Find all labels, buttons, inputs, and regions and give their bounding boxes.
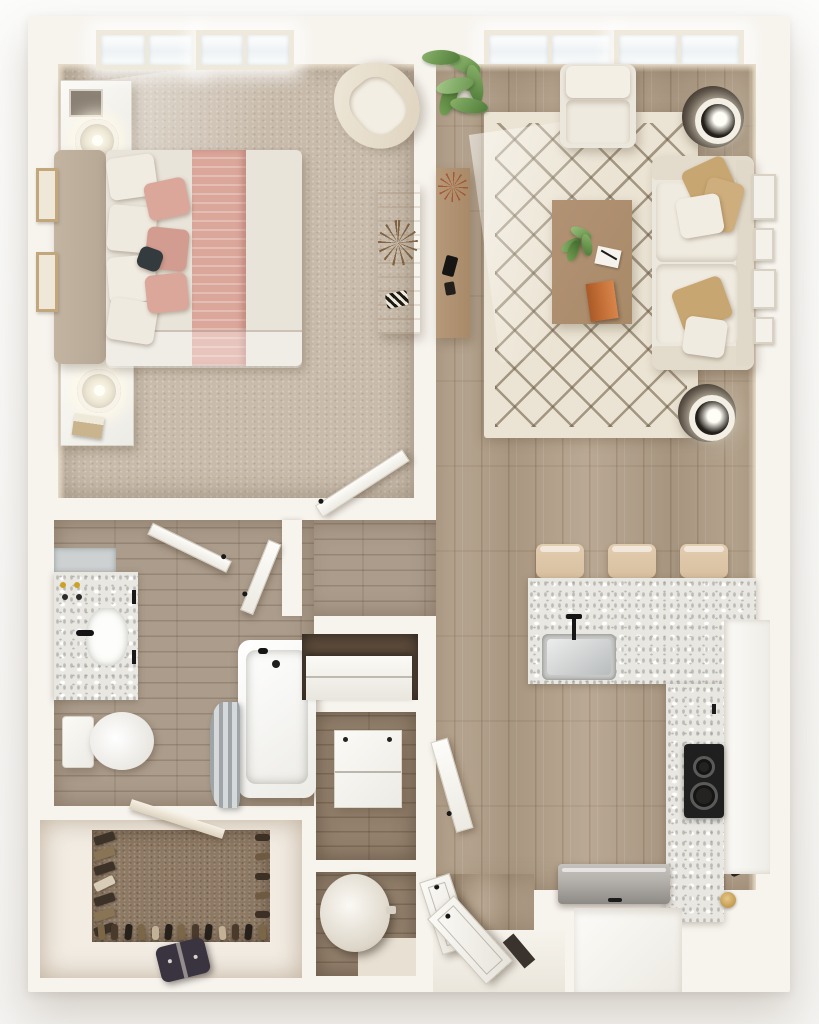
heater-pipe [386, 906, 396, 914]
decor-bowl [720, 892, 736, 908]
shoe-pair [138, 924, 146, 941]
wall-frame [754, 317, 774, 344]
floor-plan-render [0, 0, 819, 1024]
window-pane [552, 35, 611, 65]
shower-curtain [210, 702, 240, 808]
cooktop [684, 744, 724, 818]
striped-decor [385, 290, 410, 309]
tub-drain [272, 660, 280, 668]
tub-faucet [258, 648, 268, 654]
nightstand [60, 356, 134, 446]
shoe-pair [152, 926, 159, 940]
entry-cabinet [574, 908, 682, 992]
clothing-item [93, 861, 116, 876]
cooktop-burner [693, 756, 715, 778]
clothing-item [93, 892, 116, 907]
bag-dot [193, 954, 198, 959]
round-side-table [682, 86, 744, 148]
remote-controls [442, 255, 459, 277]
bedroom-wall-art [36, 252, 58, 312]
kitchen-wall-cabinets [724, 620, 770, 874]
bag-dot [167, 959, 172, 964]
cooktop-burner [690, 782, 718, 810]
vanity-sink [86, 608, 128, 666]
wall-frame [752, 174, 776, 220]
vanity-faucet [76, 630, 94, 636]
book-stack [72, 413, 105, 439]
shoe-pair [204, 924, 213, 941]
shoe-pair [218, 926, 226, 941]
gallery-wall-frames [752, 174, 776, 344]
shelf-edge-line [306, 676, 412, 678]
cabinet-handle [132, 650, 136, 664]
door-handle [220, 553, 227, 560]
plant-leaf [422, 50, 460, 65]
round-side-table [678, 384, 736, 442]
shoe-pair [97, 924, 105, 941]
armchair-seat [566, 100, 630, 144]
armchair [560, 64, 636, 148]
window-pane [101, 35, 145, 65]
shoe-pair [255, 873, 270, 880]
bedroom-window [196, 30, 294, 70]
window-bench [378, 184, 420, 334]
faucet-knob-dark [62, 594, 68, 600]
sofa-pillow-white [682, 315, 729, 358]
shoe-pair [111, 924, 118, 940]
clothing-item [93, 831, 116, 846]
orange-book [585, 280, 618, 322]
laundry-closet-floor [316, 712, 416, 860]
bag-strap [176, 942, 189, 978]
shoe-pair [245, 924, 254, 941]
bathroom-floor [54, 520, 314, 806]
picture-frame-decor [69, 89, 103, 117]
linen-shelf [306, 656, 412, 700]
bed-pillow-blush [144, 272, 190, 314]
counter-handle [712, 704, 716, 714]
control-dot [343, 737, 348, 742]
bedroom-floor [58, 64, 414, 498]
ring-lamp [689, 395, 735, 441]
bar-stool [608, 544, 656, 578]
bathroom-vanity [54, 572, 138, 700]
apartment-outline [28, 16, 790, 992]
sink-basin [547, 639, 611, 675]
wall-stub [282, 520, 302, 616]
door-handle [446, 810, 452, 816]
washer-lid-line [335, 771, 401, 773]
wall-frame [754, 228, 774, 261]
kitchen-sink [542, 634, 616, 680]
control-dot [387, 737, 392, 742]
sink-faucet [572, 616, 576, 640]
washer-dryer [334, 730, 402, 808]
clothing-item [93, 875, 116, 892]
cabinet-handle [132, 590, 136, 604]
accent-chair [317, 44, 438, 166]
faucet-knob-gold [74, 582, 80, 588]
table-plant [558, 224, 598, 264]
plant-leaf [449, 95, 489, 115]
door-handle [318, 498, 325, 505]
water-heater [320, 874, 390, 952]
window-pane [681, 35, 739, 65]
shoe-pair [255, 834, 270, 841]
notepad [594, 246, 621, 269]
window-pane [247, 35, 289, 65]
window-pane [201, 35, 243, 65]
plant-leaf [580, 233, 594, 257]
window-pane [149, 35, 193, 65]
wall-frame [752, 269, 776, 309]
shoe-row [98, 920, 266, 940]
faucet-knob-dark [76, 594, 82, 600]
toilet-bowl [90, 712, 154, 770]
shoe-pair [255, 911, 270, 918]
ring-lamp [695, 98, 741, 144]
shoe-pair [232, 924, 239, 940]
bedroom-wall-art [36, 168, 58, 222]
media-console [436, 168, 470, 338]
bar-stools [536, 544, 728, 578]
hanging-clothes [94, 834, 118, 934]
clothing-item [93, 846, 116, 861]
table-lamp [77, 369, 121, 413]
shoe-pair [124, 924, 133, 941]
duffel-bag [154, 936, 211, 983]
dried-plant [378, 220, 418, 266]
shoe-pair [255, 891, 271, 900]
window-pane [619, 35, 677, 65]
door-handle [434, 884, 440, 890]
dried-arrangement [438, 172, 468, 202]
remote-controls [444, 281, 456, 296]
coffee-table [552, 200, 632, 324]
utility-closet-floor [316, 872, 416, 976]
appliance-top-line [562, 868, 666, 872]
door-handle [444, 913, 451, 920]
bed-headboard [54, 150, 106, 364]
chair-cushion [340, 68, 414, 143]
kitchen-counter-top [528, 578, 756, 684]
faucet-knob-gold [60, 582, 66, 588]
shoe-pair [255, 852, 271, 861]
tub-basin [246, 650, 308, 784]
shoe-pair [164, 924, 173, 941]
appliance-handle [608, 898, 622, 902]
bedroom-door [315, 449, 410, 517]
walk-in-closet [40, 820, 302, 978]
sofa [652, 156, 754, 370]
armchair-back-cushion [566, 66, 630, 98]
bar-stool [680, 544, 728, 578]
potted-plant [422, 50, 514, 146]
sink-faucet-handle [566, 614, 582, 619]
shoe-pair [258, 924, 266, 941]
hall-floor [302, 520, 436, 616]
shoe-column [252, 834, 270, 918]
refrigerator [558, 864, 670, 904]
linen-closet [302, 634, 418, 700]
vanity-mirror-ledge [54, 548, 116, 574]
bedroom-window [96, 30, 198, 70]
sofa-pillow-white [675, 192, 725, 239]
shoe-pair [178, 924, 186, 941]
bar-stool [536, 544, 584, 578]
